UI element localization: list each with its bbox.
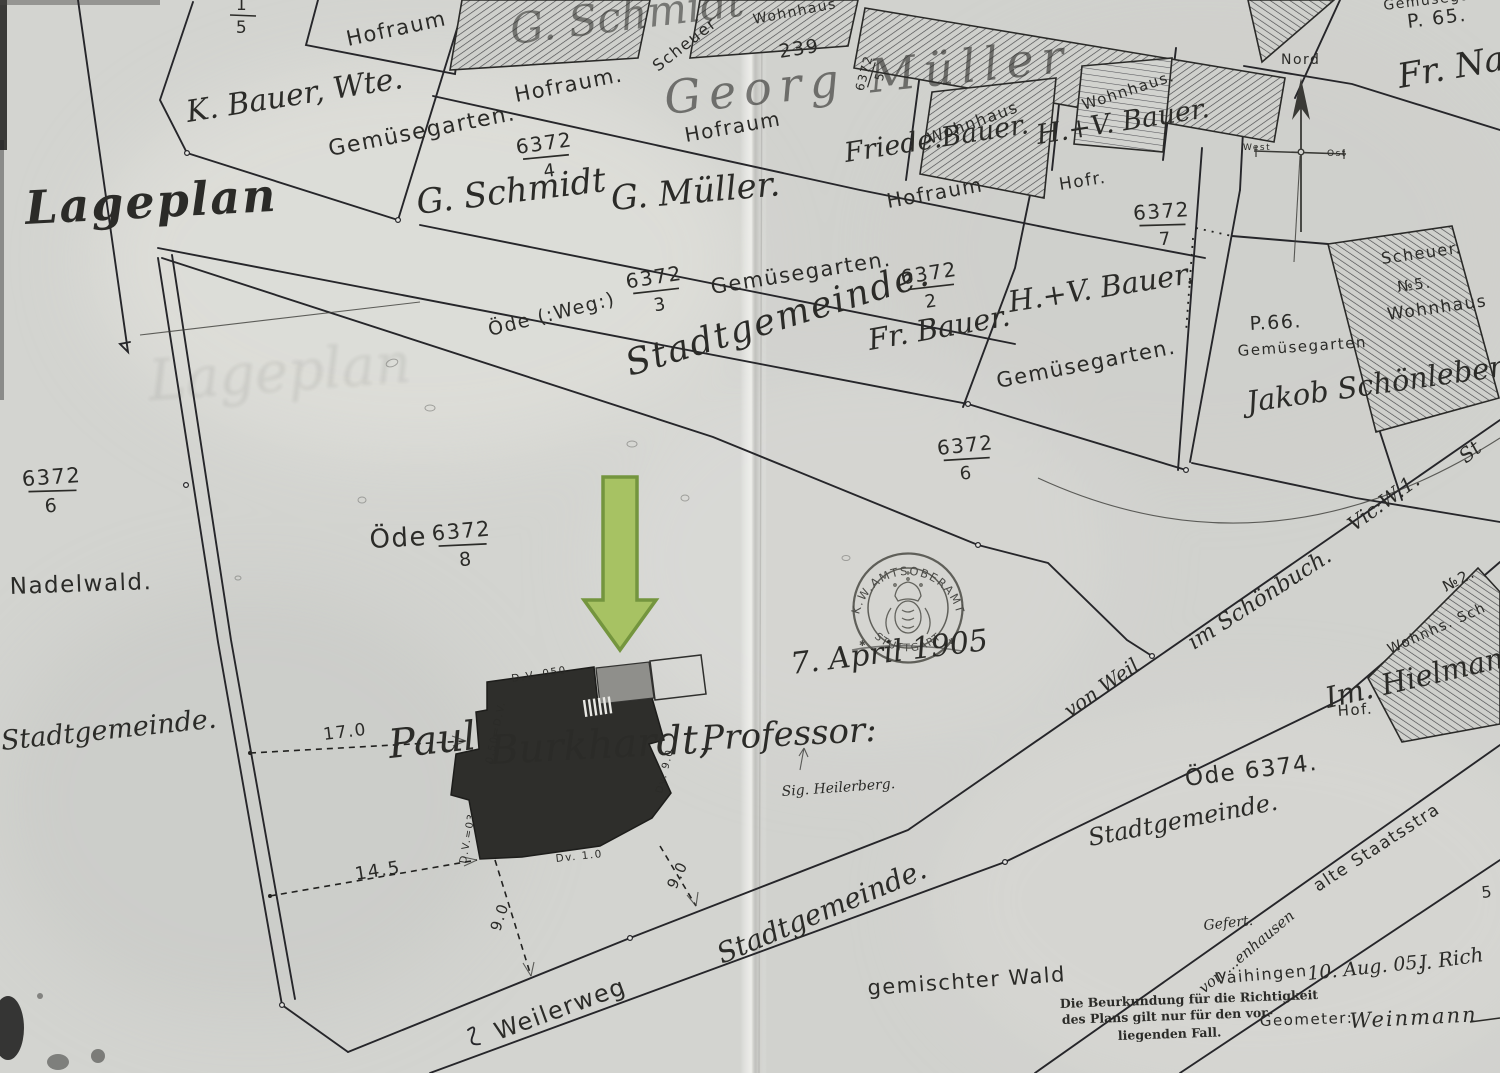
fold-crease [740, 0, 767, 1073]
note-geometer: Geometer: [1260, 1009, 1354, 1030]
label-nadelwald: Nadelwald. [9, 569, 152, 600]
compass-north-label: Nord [1281, 52, 1320, 68]
label-five-fragment: 5 [1480, 882, 1494, 902]
frac-num: 6372 [1132, 197, 1190, 225]
frac-den: 6 [959, 462, 974, 484]
frac-den: 5 [236, 18, 248, 38]
paper-texture: Lageplan [0, 0, 1500, 1073]
compass-east-label: Ost [1327, 149, 1347, 159]
scanned-site-plan: Lageplan [0, 0, 1500, 1073]
label-oede: Öde [369, 520, 428, 555]
label-p66: P.66. [1249, 310, 1302, 335]
frac-num: 1 [236, 0, 248, 15]
owner-paul: Paul [385, 713, 478, 768]
frac-den: 8 [458, 548, 473, 571]
compass-west-label: West [1243, 143, 1271, 153]
frac-num: 6372 [21, 463, 82, 491]
map-canvas: Lageplan [0, 0, 1500, 1073]
frac-den: 6 [44, 495, 59, 518]
frac-den: 7 [1158, 228, 1172, 250]
